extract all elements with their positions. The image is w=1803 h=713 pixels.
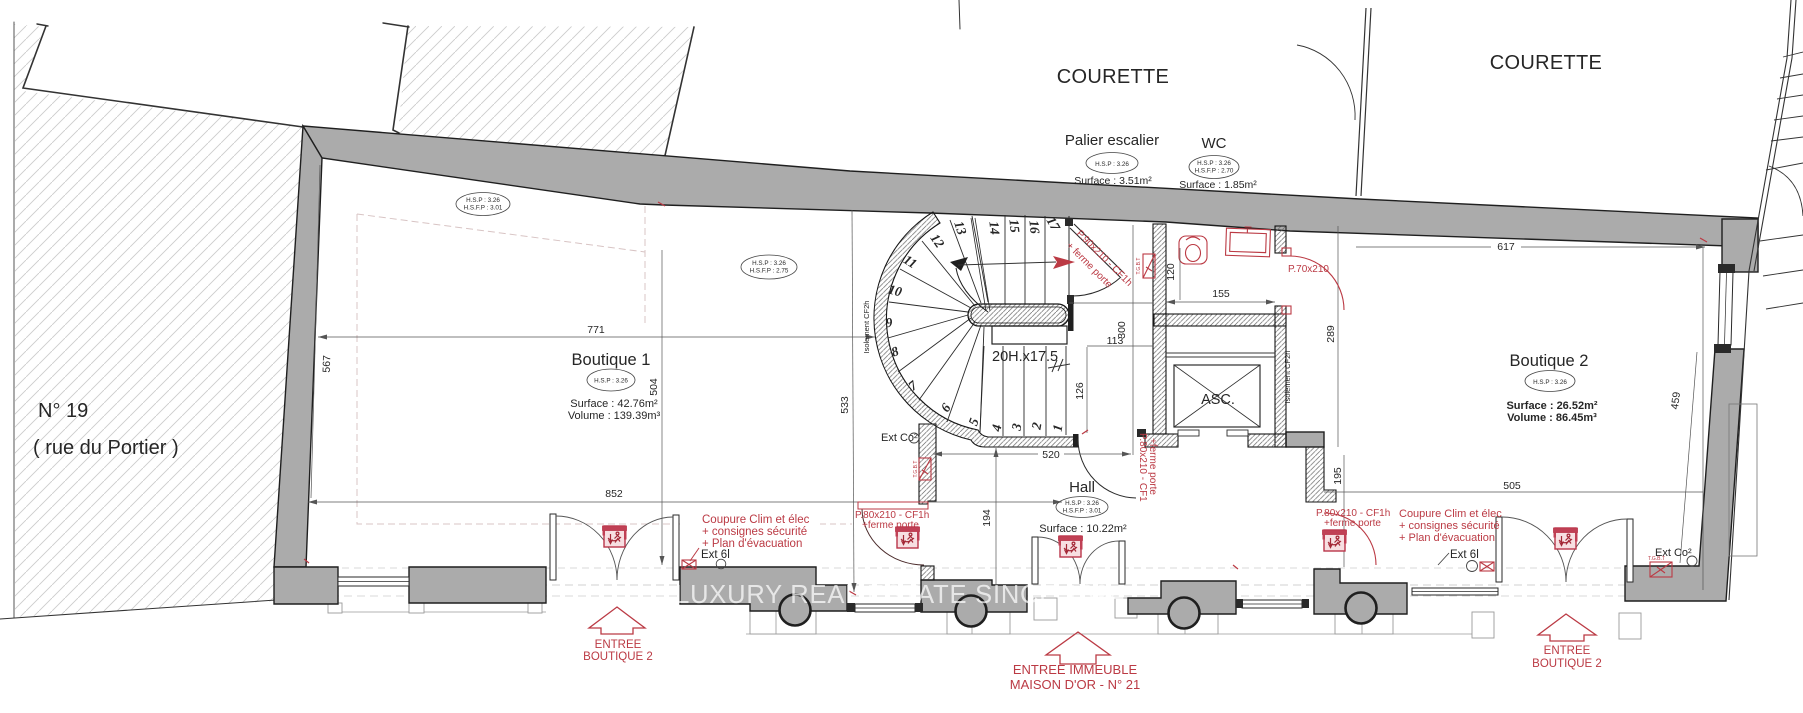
svg-text:Ext Co²: Ext Co² (881, 432, 918, 444)
svg-text:H.S.P : 3.26: H.S.P : 3.26 (752, 260, 786, 267)
svg-text:520: 520 (1042, 449, 1060, 461)
svg-text:T.G.B.T: T.G.B.T (913, 461, 919, 478)
svg-text:P.80x210 - CF1: P.80x210 - CF1 (1137, 433, 1148, 502)
svg-text:ASC.: ASC. (1201, 392, 1235, 408)
svg-text:Surface : 42.76m²: Surface : 42.76m² (570, 398, 658, 410)
svg-text:N° 19: N° 19 (38, 400, 88, 422)
svg-text:459: 459 (1669, 391, 1683, 410)
svg-text:LUXURY REAL ESTATE SINCE 1894: LUXURY REAL ESTATE SINCE 1894 (675, 581, 1125, 609)
svg-text:P.70x210: P.70x210 (1288, 264, 1329, 275)
svg-text:15: 15 (1006, 218, 1022, 233)
svg-text:567: 567 (321, 355, 334, 373)
svg-text:MAISON D'OR - N° 21: MAISON D'OR - N° 21 (1010, 677, 1140, 692)
svg-text:+ Plan d'évacuation: + Plan d'évacuation (1399, 532, 1495, 544)
svg-text:195: 195 (1332, 467, 1344, 485)
svg-text:300: 300 (1116, 321, 1128, 339)
svg-text:Ext 6l: Ext 6l (701, 549, 730, 561)
svg-text:505: 505 (1503, 480, 1521, 492)
svg-text:Surface : 26.52m²: Surface : 26.52m² (1506, 400, 1597, 412)
svg-text:Surface : 1.85m²: Surface : 1.85m² (1179, 179, 1257, 191)
svg-text:H.S.P : 3.26: H.S.P : 3.26 (1197, 160, 1231, 167)
svg-text:504: 504 (648, 378, 660, 396)
svg-text:ENTREE: ENTREE (1544, 645, 1591, 657)
svg-text:+ferme porte: +ferme porte (1147, 438, 1158, 495)
svg-text:Ext 6l: Ext 6l (1450, 549, 1479, 561)
svg-text:COURETTE: COURETTE (1490, 52, 1602, 74)
svg-text:852: 852 (605, 488, 623, 500)
svg-text:+ consignes sécurité: + consignes sécurité (1399, 520, 1500, 532)
svg-text:20H.x17.5: 20H.x17.5 (992, 349, 1058, 365)
svg-text:194: 194 (981, 509, 993, 527)
svg-text:( rue du Portier ): ( rue du Portier ) (33, 437, 179, 459)
svg-text:H.S.F.P : 2.75: H.S.F.P : 2.75 (750, 268, 789, 275)
svg-text:WC: WC (1202, 135, 1227, 152)
svg-text:BOUTIQUE 2: BOUTIQUE 2 (583, 651, 653, 663)
svg-text:Coupure Clim et élec: Coupure Clim et élec (702, 514, 810, 526)
svg-text:Surface : 10.22m²: Surface : 10.22m² (1039, 523, 1127, 535)
svg-text:533: 533 (839, 396, 851, 414)
svg-text:16: 16 (1026, 219, 1042, 234)
svg-text:H.S.P : 3.26: H.S.P : 3.26 (466, 197, 500, 204)
svg-text:+ Plan d'évacuation: + Plan d'évacuation (702, 538, 802, 550)
svg-text:Boutique 2: Boutique 2 (1510, 352, 1589, 370)
svg-text:14: 14 (986, 220, 1002, 235)
svg-text:Coupure Clim et élec: Coupure Clim et élec (1399, 508, 1502, 520)
svg-text:Volume : 86.45m³: Volume : 86.45m³ (1507, 412, 1597, 424)
svg-text:T.G.B.T: T.G.B.T (1136, 258, 1142, 275)
svg-text:H.S.P : 3.26: H.S.P : 3.26 (1065, 500, 1099, 507)
svg-text:Isolement CF2h: Isolement CF2h (862, 301, 871, 354)
svg-text:Boutique 1: Boutique 1 (572, 351, 651, 369)
svg-text:Surface : 3.51m²: Surface : 3.51m² (1074, 175, 1152, 187)
svg-text:H.S.F.P : 2.70: H.S.F.P : 2.70 (1195, 168, 1234, 175)
svg-text:H.S.F.P : 3.01: H.S.F.P : 3.01 (464, 205, 503, 212)
svg-text:H.S.P : 3.26: H.S.P : 3.26 (594, 378, 628, 385)
svg-text:Palier escalier: Palier escalier (1065, 132, 1159, 149)
svg-text:289: 289 (1325, 325, 1337, 343)
svg-text:Volume : 139.39m³: Volume : 139.39m³ (568, 410, 661, 422)
svg-text:771: 771 (587, 324, 605, 336)
svg-text:ENTREE: ENTREE (595, 639, 642, 651)
svg-text:Hall: Hall (1069, 479, 1095, 496)
svg-text:617: 617 (1497, 241, 1515, 253)
svg-text:H.S.P : 3.26: H.S.P : 3.26 (1533, 379, 1567, 386)
svg-text:COURETTE: COURETTE (1057, 66, 1169, 88)
svg-text:120: 120 (1165, 263, 1177, 281)
svg-text:BOUTIQUE 2: BOUTIQUE 2 (1532, 658, 1602, 670)
svg-text:126: 126 (1074, 382, 1086, 400)
svg-text:ENTREE IMMEUBLE: ENTREE IMMEUBLE (1013, 662, 1138, 677)
svg-text:Isolement CF2h: Isolement CF2h (1283, 351, 1292, 404)
svg-text:H.S.P : 3.26: H.S.P : 3.26 (1095, 161, 1129, 168)
svg-text:T.G.B.T: T.G.B.T (1648, 556, 1665, 562)
svg-text:+ consignes sécurité: + consignes sécurité (702, 526, 807, 538)
svg-text:H.S.F.P : 3.01: H.S.F.P : 3.01 (1063, 508, 1102, 515)
svg-text:155: 155 (1212, 288, 1230, 300)
svg-text:+ferme porte: +ferme porte (1324, 518, 1381, 529)
